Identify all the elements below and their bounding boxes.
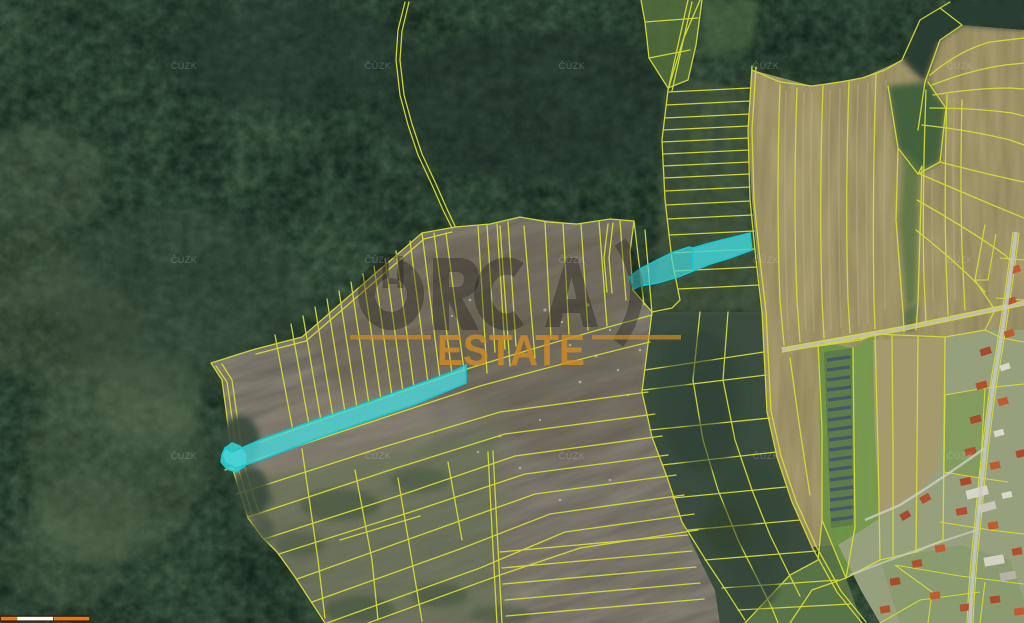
svg-text:ČÚZK: ČÚZK [753,255,780,265]
svg-text:ČÚZK: ČÚZK [753,61,780,71]
svg-text:ČÚZK: ČÚZK [365,61,392,71]
svg-text:ČÚZK: ČÚZK [365,451,392,461]
svg-text:ČÚZK: ČÚZK [171,61,198,71]
svg-text:ČÚZK: ČÚZK [171,451,198,461]
svg-text:ČÚZK: ČÚZK [947,451,974,461]
svg-text:ČÚZK: ČÚZK [559,451,586,461]
svg-text:ČÚZK: ČÚZK [559,61,586,71]
svg-text:ČÚZK: ČÚZK [947,61,974,71]
svg-text:ČÚZK: ČÚZK [559,255,586,265]
svg-text:ČÚZK: ČÚZK [753,451,780,461]
svg-text:ČÚZK: ČÚZK [365,255,392,265]
svg-text:ČÚZK: ČÚZK [947,255,974,265]
svg-text:ČÚZK: ČÚZK [171,255,198,265]
svg-text:ESTATE: ESTATE [437,326,585,375]
